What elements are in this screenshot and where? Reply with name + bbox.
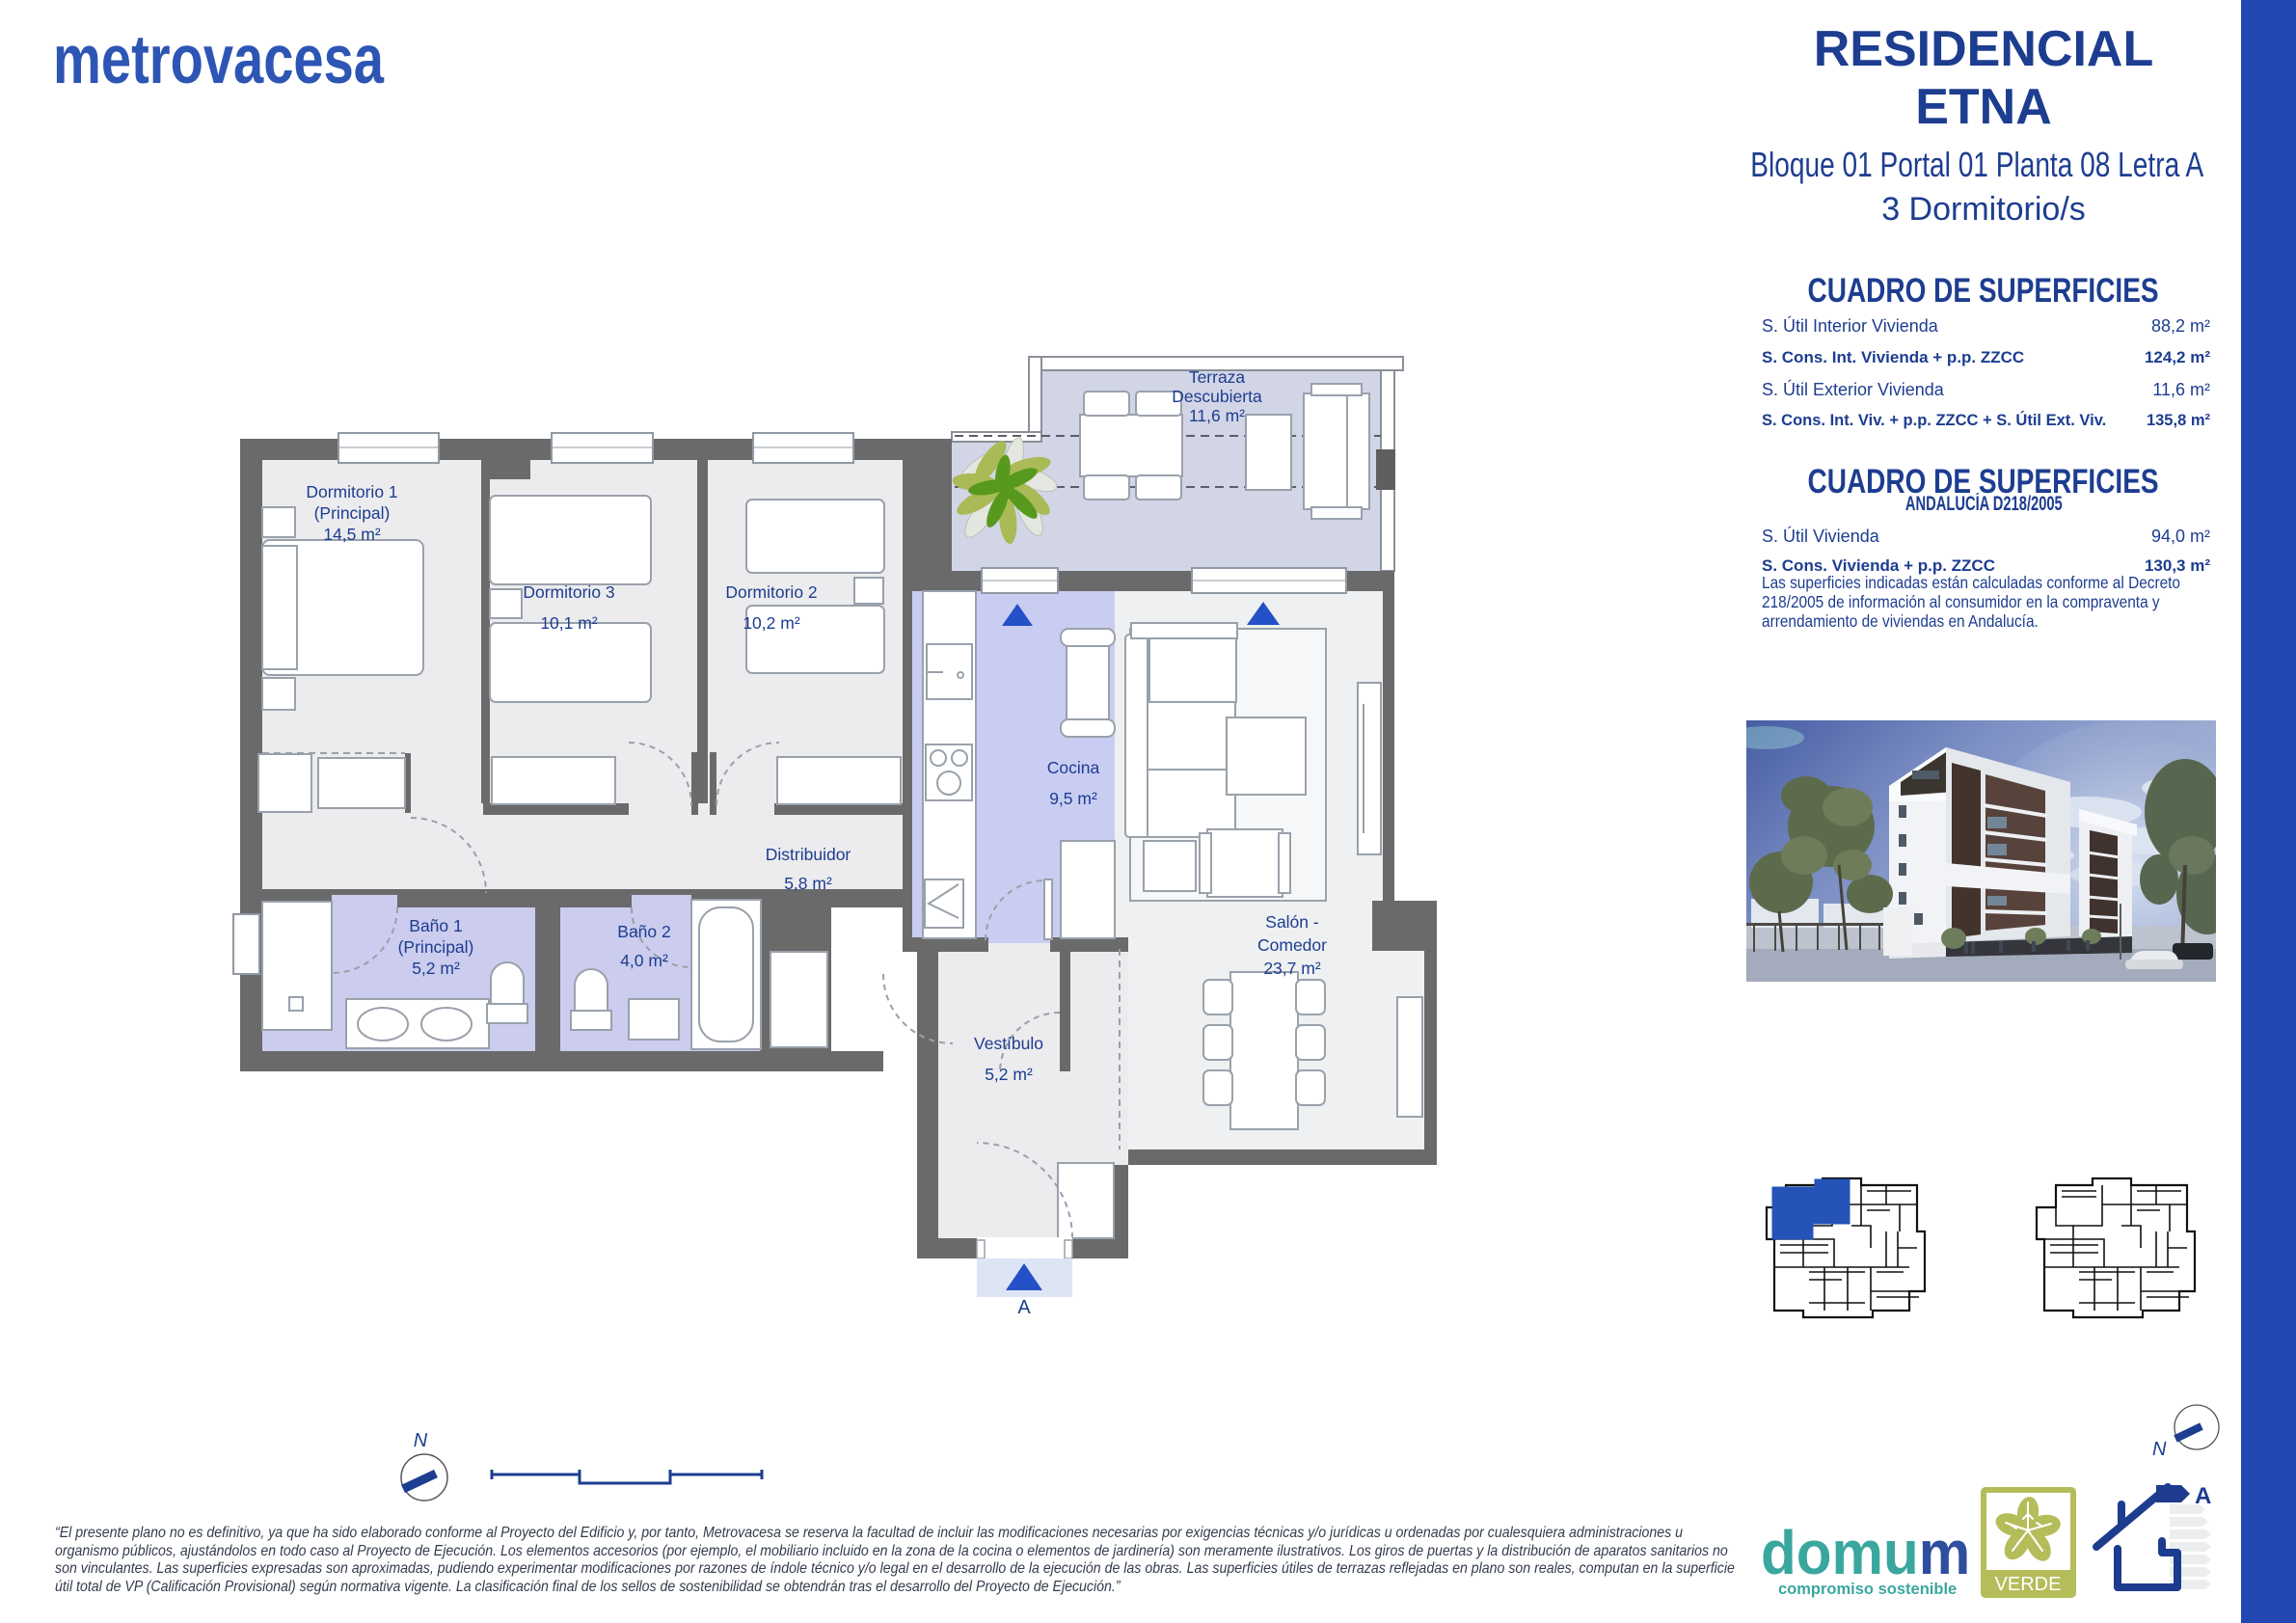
svg-text:14,5 m²: 14,5 m² — [323, 525, 380, 544]
svg-text:9,5 m²: 9,5 m² — [1049, 789, 1097, 808]
svg-text:A: A — [1017, 1297, 1031, 1318]
svg-text:Distribuidor: Distribuidor — [766, 845, 851, 864]
svg-text:N: N — [2152, 1439, 2167, 1460]
svg-text:5,2 m²: 5,2 m² — [985, 1065, 1033, 1084]
svg-text:Dormitorio 2: Dormitorio 2 — [725, 582, 817, 602]
svg-text:Baño 1: Baño 1 — [409, 916, 462, 935]
svg-text:Terraza: Terraza — [1189, 367, 1246, 387]
svg-text:11,6 m²: 11,6 m² — [1189, 406, 1245, 425]
svg-text:VERDE: VERDE — [1995, 1574, 2062, 1595]
svg-text:A: A — [2195, 1483, 2211, 1509]
svg-text:Dormitorio 3: Dormitorio 3 — [523, 582, 614, 602]
svg-text:Baño 2: Baño 2 — [617, 922, 670, 941]
svg-text:5,2 m²: 5,2 m² — [412, 959, 460, 978]
svg-text:N: N — [414, 1430, 428, 1451]
svg-text:23,7 m²: 23,7 m² — [1263, 959, 1320, 978]
svg-text:10,1 m²: 10,1 m² — [540, 613, 597, 633]
svg-text:Dormitorio 1: Dormitorio 1 — [306, 482, 397, 501]
svg-text:Comedor: Comedor — [1257, 935, 1327, 955]
svg-text:(Principal): (Principal) — [398, 937, 474, 957]
svg-text:Descubierta: Descubierta — [1172, 387, 1262, 406]
svg-text:Vestíbulo: Vestíbulo — [974, 1034, 1043, 1053]
svg-text:10,2 m²: 10,2 m² — [743, 613, 799, 633]
svg-text:Cocina: Cocina — [1047, 758, 1100, 777]
svg-text:5,8 m²: 5,8 m² — [784, 874, 832, 893]
svg-text:4,0 m²: 4,0 m² — [620, 951, 668, 970]
svg-text:(Principal): (Principal) — [314, 503, 391, 523]
svg-text:Salón -: Salón - — [1265, 912, 1319, 932]
